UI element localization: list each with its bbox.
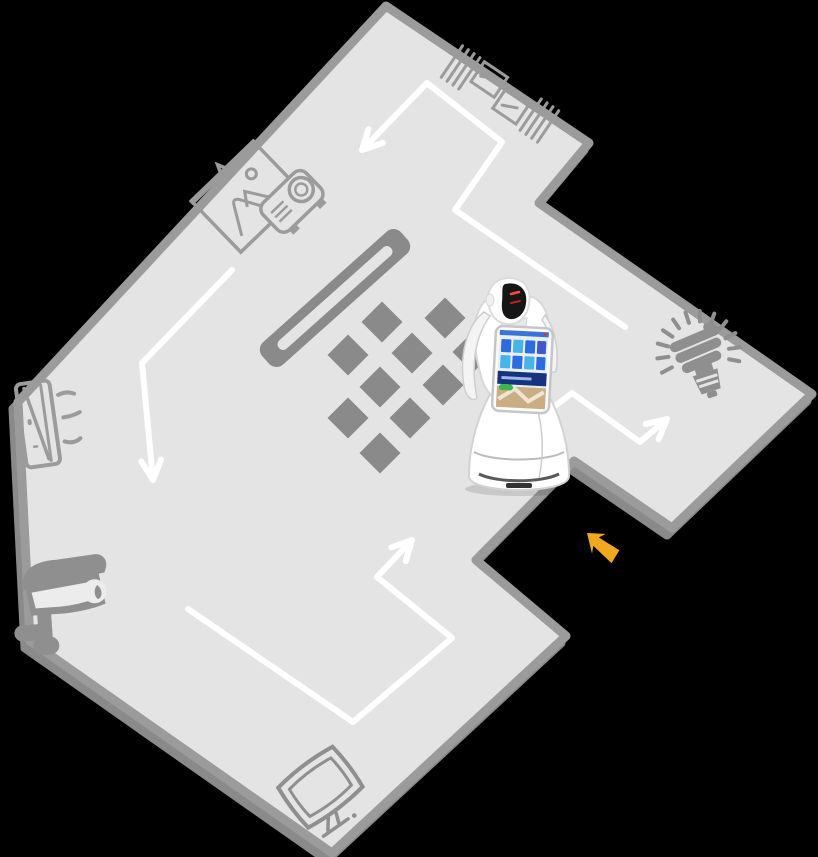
app-tile bbox=[513, 340, 524, 354]
app-tile bbox=[500, 355, 511, 369]
robot-ear bbox=[486, 294, 494, 306]
robot-wheel-notch bbox=[506, 483, 532, 488]
app-tile bbox=[501, 339, 512, 353]
floor-map-scene bbox=[0, 0, 818, 857]
app-tile bbox=[525, 340, 536, 354]
app-tile bbox=[537, 341, 547, 354]
floor-map-canvas bbox=[0, 0, 818, 857]
robot-tablet bbox=[492, 326, 553, 414]
screen-green-button bbox=[499, 384, 513, 391]
app-tile bbox=[512, 356, 523, 370]
app-tile bbox=[536, 357, 546, 370]
app-tile bbox=[524, 356, 535, 370]
